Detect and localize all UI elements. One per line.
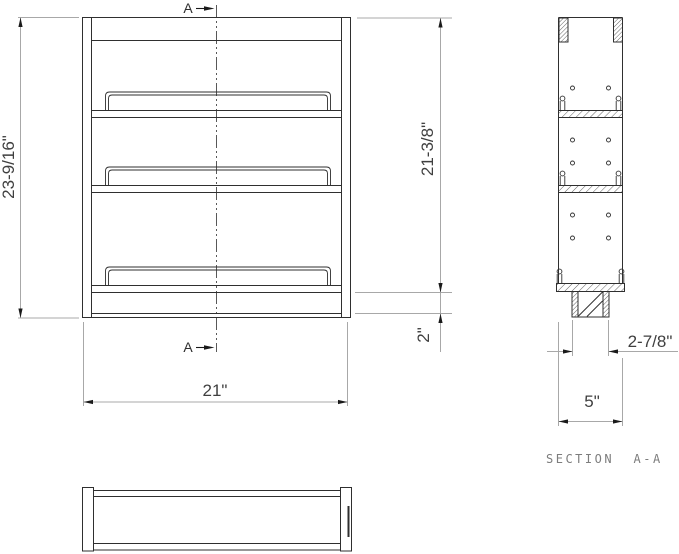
dim-label-front-base-height: 2" [416, 305, 432, 365]
technical-drawing-canvas: A A 23-9/16" 21-3/8" 2" 21" 2-7/8" 5" SE… [0, 0, 679, 554]
dim-front-overall-height [18, 18, 79, 319]
drawing-linework [0, 0, 679, 554]
front-guard-rails [106, 92, 331, 286]
side-section-view [557, 18, 625, 318]
section-arrow-top [196, 6, 215, 11]
dim-label-section-depth: 5" [562, 394, 622, 410]
section-view-title: SECTION A-A [546, 452, 663, 466]
section-marker-top-label: A [178, 0, 198, 16]
dim-label-front-shelf-height: 21-3/8" [420, 89, 436, 209]
dim-label-front-overall-height: 23-9/16" [1, 107, 17, 227]
section-peg-holes [571, 86, 611, 240]
dim-label-front-width: 21" [175, 383, 255, 399]
section-marker-bottom-label: A [178, 339, 198, 355]
bottom-left-end-cap [83, 488, 94, 552]
dim-label-section-base-width: 2-7/8" [600, 334, 679, 350]
section-arrow-bottom [196, 345, 215, 350]
bottom-view [83, 488, 352, 552]
section-top-rail-blocks [559, 18, 623, 42]
bottom-right-end-cap [341, 488, 352, 552]
section-shelf-boards [557, 111, 625, 292]
dim-front-shelf-height [355, 18, 452, 352]
section-base-block [572, 292, 609, 318]
